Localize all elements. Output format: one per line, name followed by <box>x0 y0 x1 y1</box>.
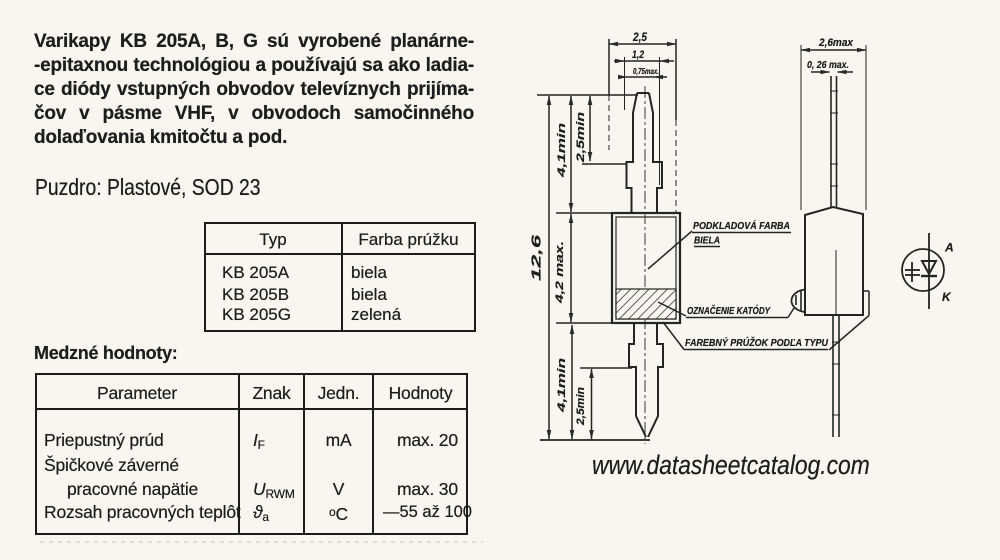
svg-text:1,2: 1,2 <box>632 49 644 61</box>
svg-text:BIELA: BIELA <box>694 235 720 247</box>
svg-text:4,1min: 4,1min <box>556 123 568 179</box>
svg-text:2,5: 2,5 <box>632 30 647 44</box>
svg-text:0,75max.: 0,75max. <box>633 66 659 76</box>
svg-text:PODKLADOVÁ FARBA: PODKLADOVÁ FARBA <box>693 219 790 232</box>
svg-text:4,1min: 4,1min <box>556 358 568 414</box>
svg-text:A: A <box>944 241 954 255</box>
svg-text:2,5min: 2,5min <box>575 112 587 164</box>
svg-text:OZNAČENIE KATÓDY: OZNAČENIE KATÓDY <box>687 304 771 317</box>
svg-text:2,6max: 2,6max <box>818 37 854 49</box>
svg-text:4,2 max.: 4,2 max. <box>554 241 566 304</box>
svg-text:FAREBNÝ PRÚŽOK PODĽA TYPU: FAREBNÝ PRÚŽOK PODĽA TYPU <box>685 336 829 349</box>
svg-text:12,6: 12,6 <box>529 234 544 281</box>
svg-text:2,5min: 2,5min <box>575 387 587 426</box>
svg-text:0, 26 max.: 0, 26 max. <box>807 60 849 71</box>
svg-text:K: K <box>942 290 952 304</box>
